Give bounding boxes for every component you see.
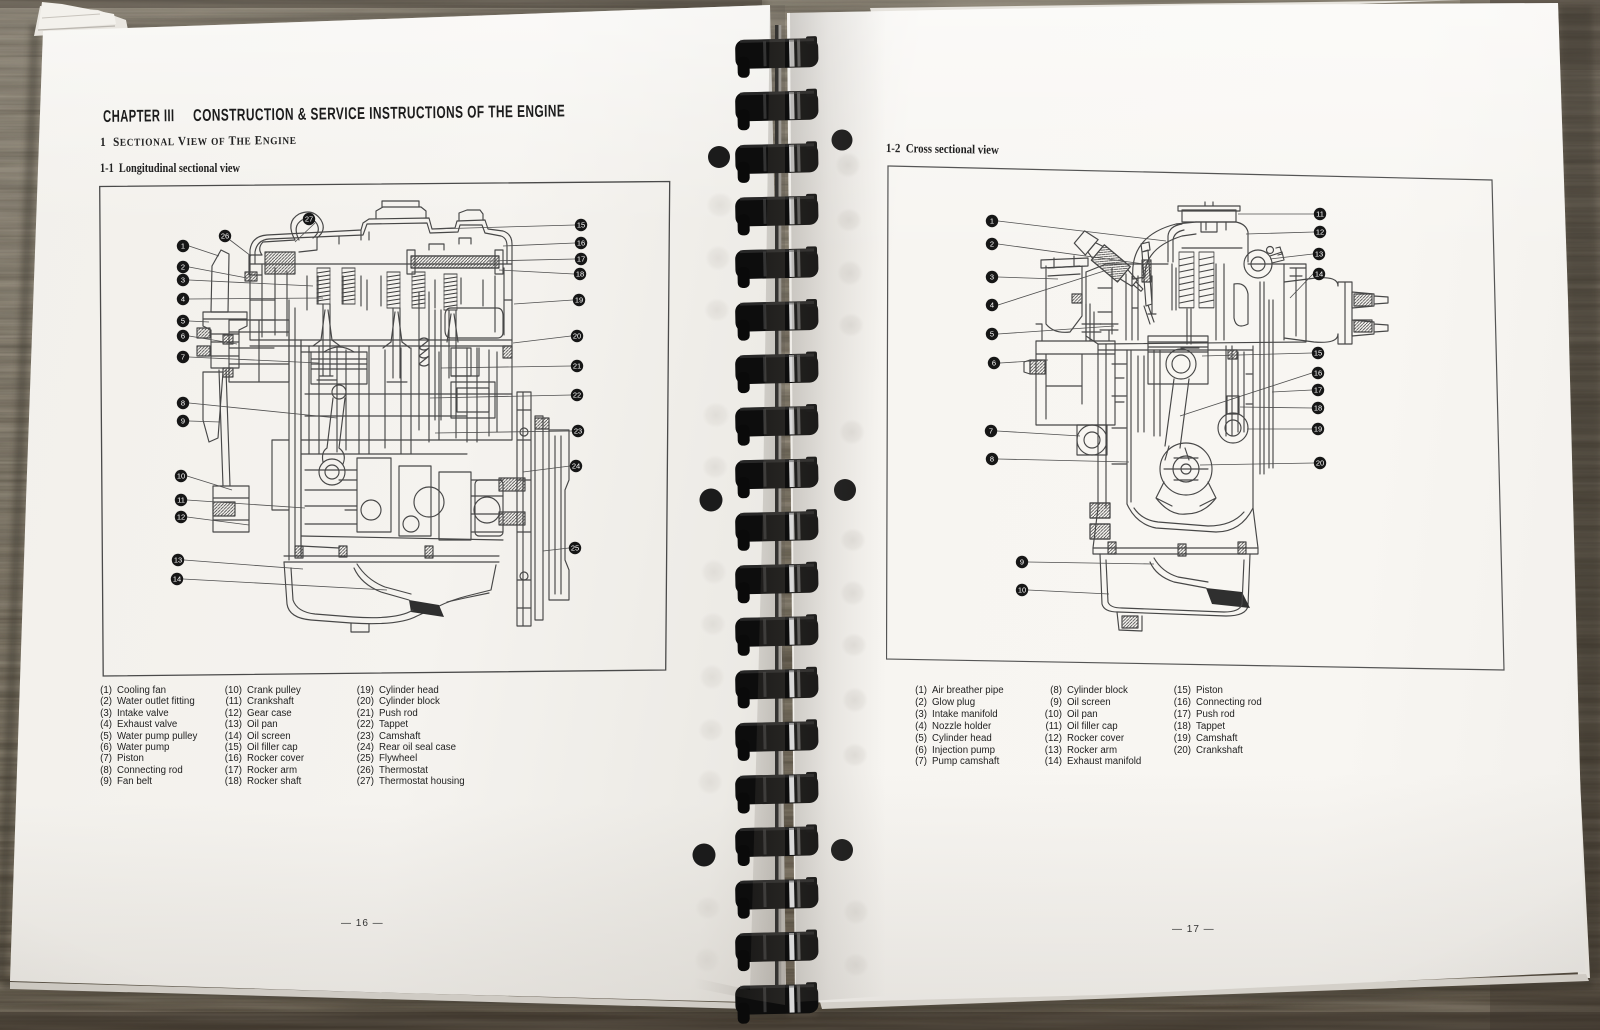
svg-text:21: 21 bbox=[573, 362, 581, 371]
svg-text:14: 14 bbox=[173, 575, 181, 584]
svg-text:23: 23 bbox=[574, 427, 582, 436]
svg-text:9: 9 bbox=[1020, 558, 1024, 567]
svg-text:24: 24 bbox=[572, 462, 580, 471]
svg-text:19: 19 bbox=[1314, 425, 1322, 434]
svg-text:6: 6 bbox=[992, 359, 996, 368]
svg-text:2: 2 bbox=[990, 240, 994, 249]
svg-text:8: 8 bbox=[990, 455, 994, 464]
svg-text:18: 18 bbox=[576, 270, 584, 279]
svg-text:2: 2 bbox=[181, 263, 185, 272]
svg-text:11: 11 bbox=[177, 496, 185, 505]
svg-text:6: 6 bbox=[181, 332, 185, 341]
svg-text:4: 4 bbox=[181, 295, 185, 304]
svg-text:12: 12 bbox=[177, 513, 185, 522]
svg-text:18: 18 bbox=[1314, 404, 1322, 413]
svg-text:25: 25 bbox=[571, 544, 579, 553]
svg-text:9: 9 bbox=[181, 417, 185, 426]
svg-text:17: 17 bbox=[1314, 386, 1322, 395]
svg-text:13: 13 bbox=[1315, 250, 1323, 259]
svg-text:19: 19 bbox=[575, 296, 583, 305]
svg-text:14: 14 bbox=[1315, 270, 1323, 279]
svg-text:4: 4 bbox=[990, 301, 994, 310]
svg-text:15: 15 bbox=[577, 221, 585, 230]
svg-text:7: 7 bbox=[989, 427, 993, 436]
svg-text:5: 5 bbox=[181, 317, 185, 326]
svg-text:15: 15 bbox=[1314, 349, 1322, 358]
svg-text:16: 16 bbox=[577, 239, 585, 248]
svg-text:11: 11 bbox=[1316, 210, 1324, 219]
svg-text:1: 1 bbox=[181, 242, 185, 251]
svg-text:27: 27 bbox=[305, 215, 313, 224]
svg-text:10: 10 bbox=[177, 472, 185, 481]
svg-text:3: 3 bbox=[181, 276, 185, 285]
svg-text:13: 13 bbox=[174, 556, 182, 565]
svg-text:10: 10 bbox=[1018, 586, 1026, 595]
svg-text:16: 16 bbox=[1314, 369, 1322, 378]
svg-text:17: 17 bbox=[577, 255, 585, 264]
svg-text:22: 22 bbox=[573, 391, 581, 400]
svg-text:20: 20 bbox=[573, 332, 581, 341]
svg-text:12: 12 bbox=[1316, 228, 1324, 237]
svg-text:1: 1 bbox=[990, 217, 994, 226]
svg-text:5: 5 bbox=[990, 330, 994, 339]
svg-text:3: 3 bbox=[990, 273, 994, 282]
svg-text:20: 20 bbox=[1316, 459, 1324, 468]
svg-text:8: 8 bbox=[181, 399, 185, 408]
svg-text:26: 26 bbox=[221, 232, 229, 241]
svg-text:7: 7 bbox=[181, 353, 185, 362]
